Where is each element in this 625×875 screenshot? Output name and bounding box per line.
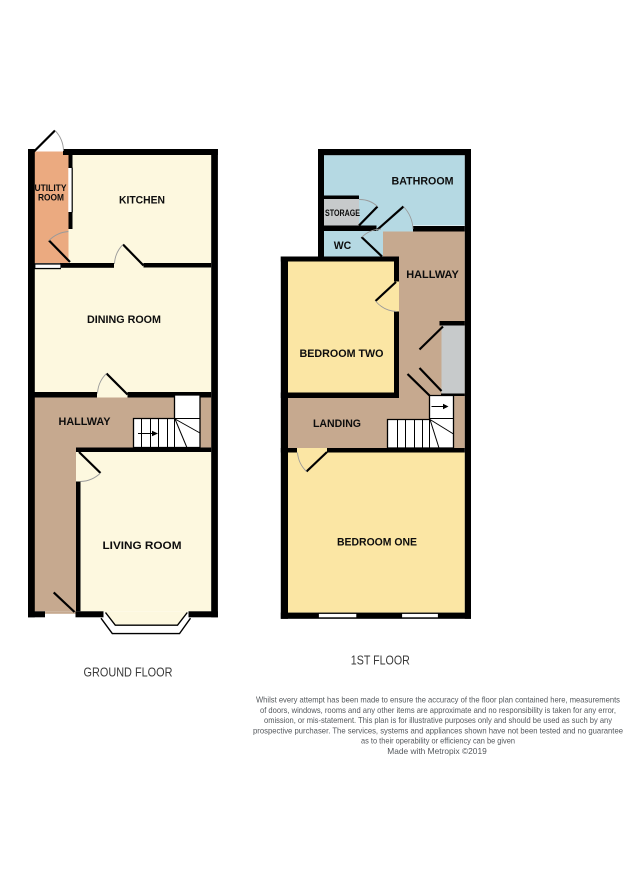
svg-text:UTILITY: UTILITY <box>35 183 68 193</box>
svg-text:as to their operability or eff: as to their operability or efficiency ca… <box>361 737 515 746</box>
svg-text:prospective purchaser. The ser: prospective purchaser. The services, sys… <box>253 726 623 735</box>
svg-text:LANDING: LANDING <box>313 418 361 430</box>
svg-text:BATHROOM: BATHROOM <box>392 175 454 187</box>
svg-text:BEDROOM ONE: BEDROOM ONE <box>337 536 417 548</box>
svg-text:Whilst every attempt has been: Whilst every attempt has been made to en… <box>256 696 620 705</box>
svg-text:GROUND FLOOR: GROUND FLOOR <box>84 666 173 680</box>
svg-text:KITCHEN: KITCHEN <box>119 194 165 206</box>
svg-text:ROOM: ROOM <box>38 193 64 203</box>
svg-text:STORAGE: STORAGE <box>325 208 360 219</box>
svg-text:HALLWAY: HALLWAY <box>59 416 112 428</box>
svg-text:omission, or mis-statement. Th: omission, or mis-statement. This plan is… <box>264 716 613 725</box>
svg-text:of doors, windows, rooms and a: of doors, windows, rooms and any other i… <box>260 706 616 715</box>
svg-text:WC: WC <box>334 240 352 252</box>
svg-text:HALLWAY: HALLWAY <box>406 269 459 281</box>
svg-text:1ST FLOOR: 1ST FLOOR <box>351 654 410 668</box>
svg-text:BEDROOM TWO: BEDROOM TWO <box>300 348 384 360</box>
svg-text:DINING ROOM: DINING ROOM <box>87 314 161 326</box>
svg-text:Made with Metropix ©2019: Made with Metropix ©2019 <box>387 747 487 756</box>
svg-text:LIVING ROOM: LIVING ROOM <box>103 540 182 552</box>
